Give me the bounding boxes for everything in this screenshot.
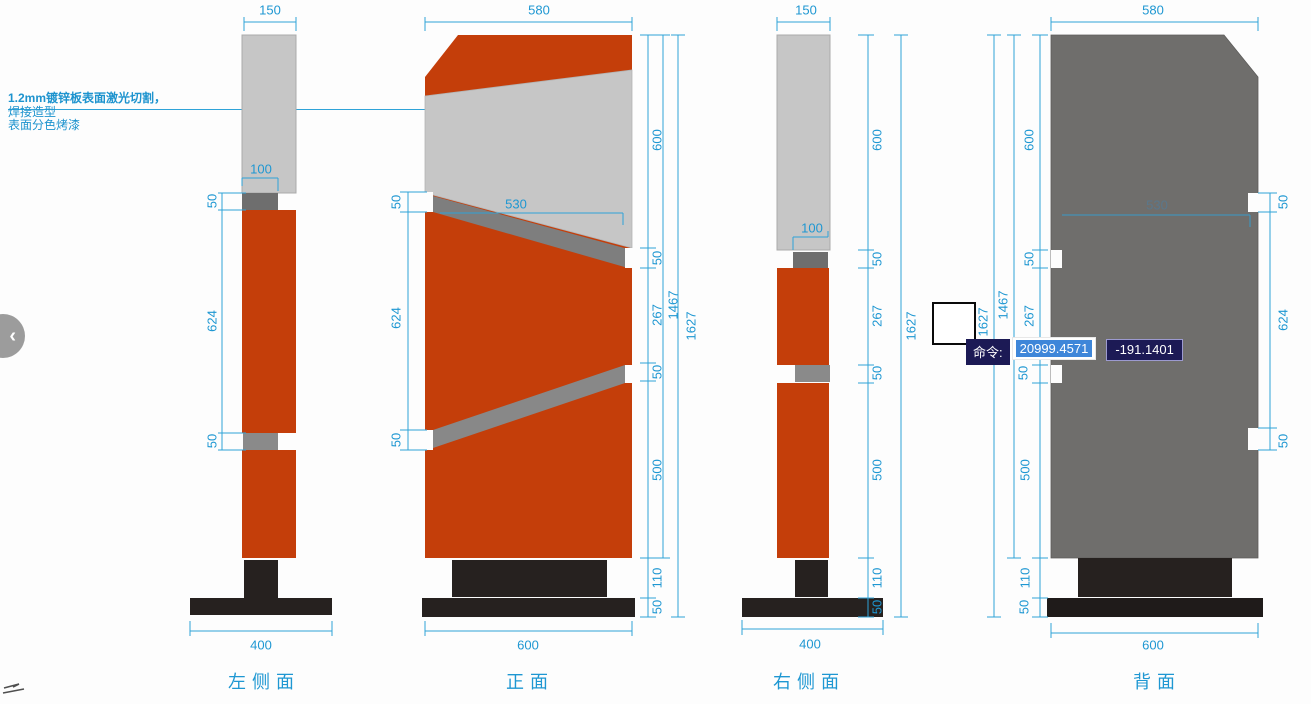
command-overlay: 命令: 20999.4571 -191.1401 [966, 337, 1183, 365]
material-annotation: 1.2mm镀锌板表面激光切割， 焊接造型 表面分色烤漆 [8, 92, 166, 133]
right-view-shapes [742, 35, 883, 617]
annotation-line-3: 表面分色烤漆 [8, 119, 166, 133]
left-view-shapes [190, 35, 332, 615]
cad-viewport: 1505801505801005062450400530506245060050… [0, 0, 1311, 704]
coordinate-x-input[interactable]: 20999.4571 [1012, 337, 1097, 360]
scribble-mark [3, 684, 24, 693]
front-view-shapes [422, 35, 635, 617]
back-view-shapes [1047, 35, 1263, 617]
command-prompt-label: 命令: [966, 339, 1010, 365]
annotation-line-2: 焊接造型 [8, 106, 166, 120]
coordinate-y-input[interactable]: -191.1401 [1106, 339, 1183, 361]
annotation-line-1: 1.2mm镀锌板表面激光切割， [8, 92, 166, 106]
coordinate-x-value: 20999.4571 [1016, 340, 1093, 357]
chevron-left-icon: ‹ [9, 325, 16, 348]
